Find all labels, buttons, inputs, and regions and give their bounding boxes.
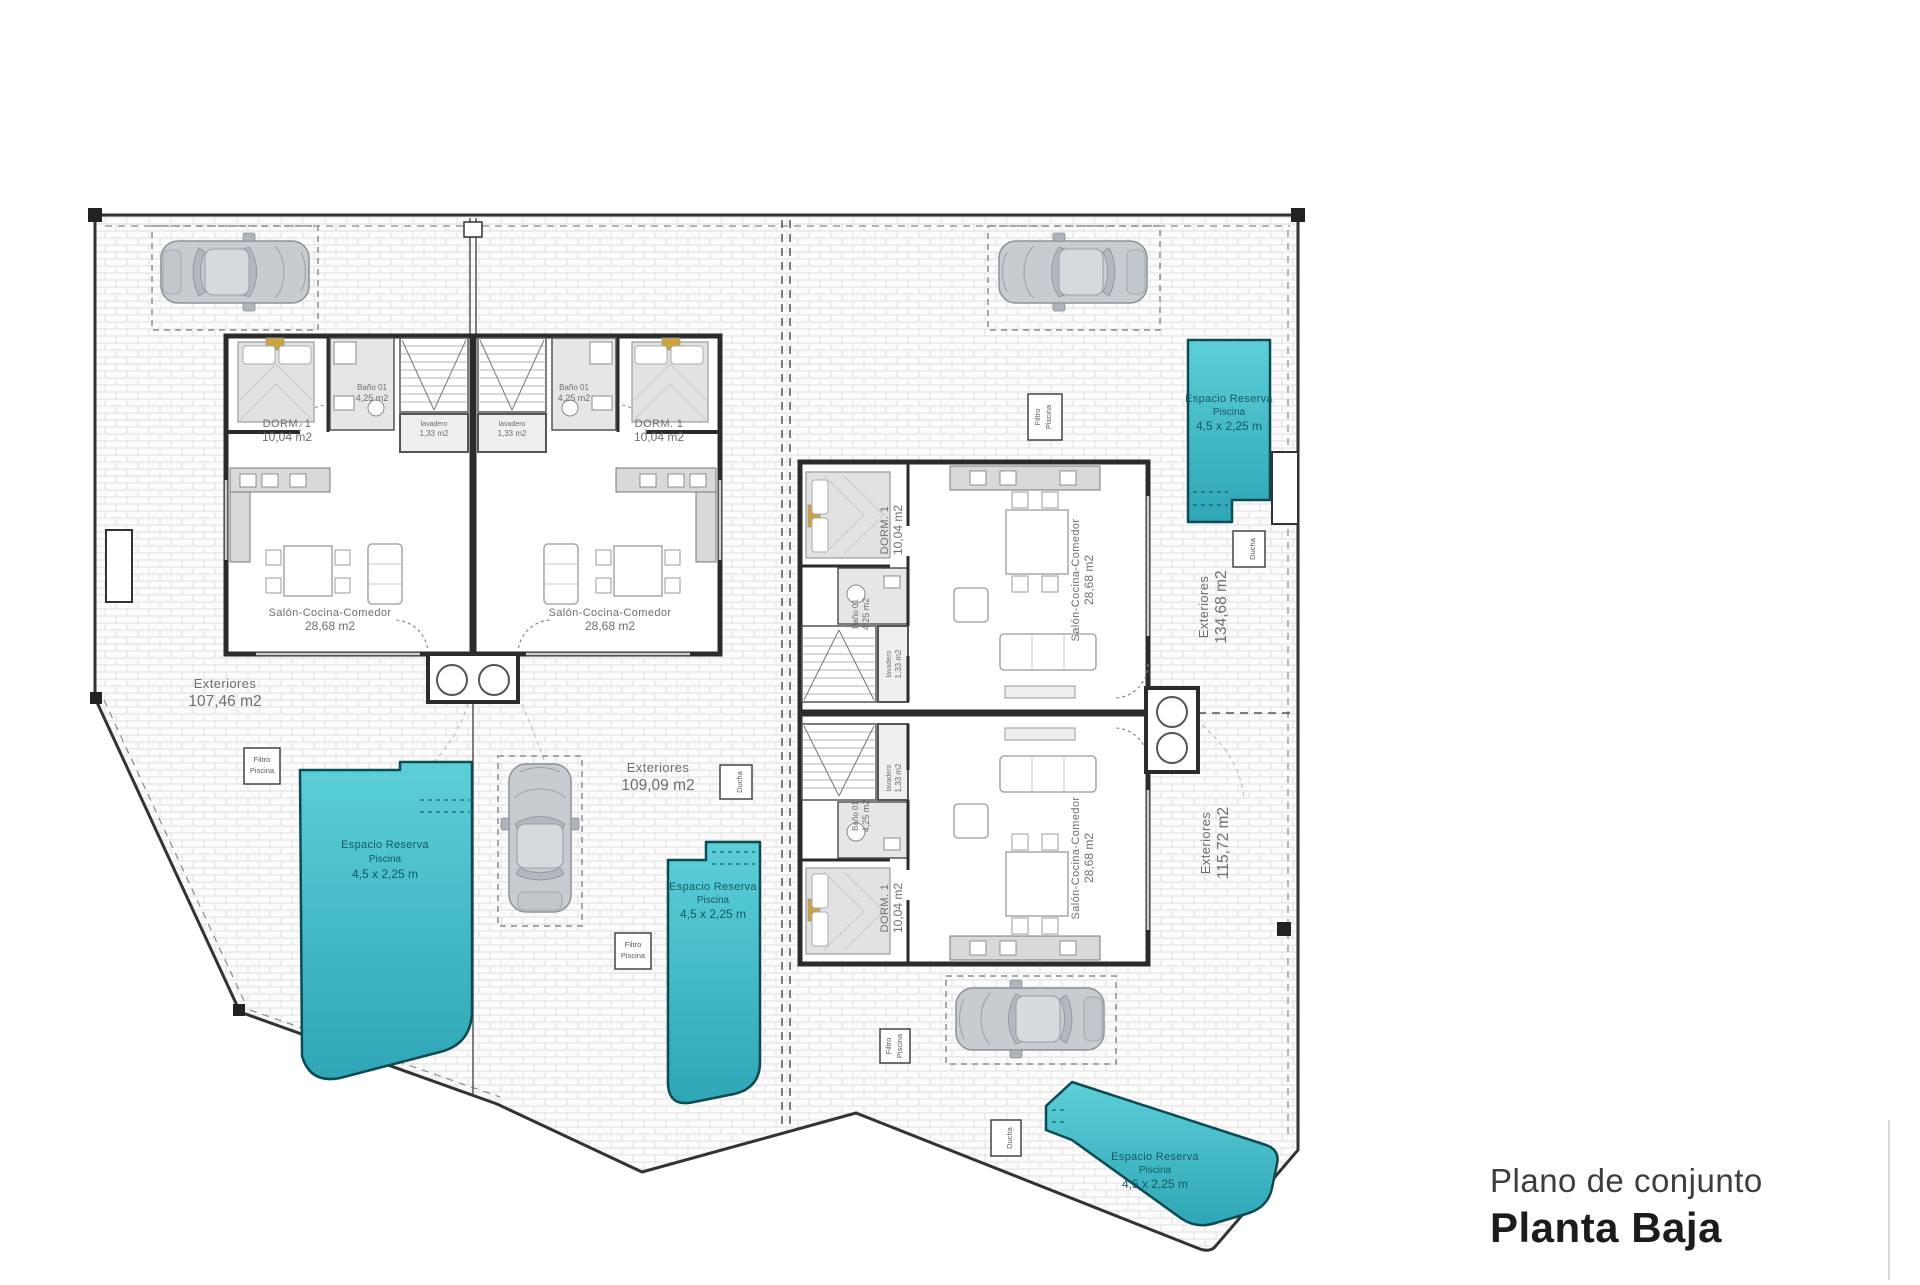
exterior-area: 134,68 m2 <box>1213 570 1230 643</box>
pool-size: 4,5 x 2,25 m <box>680 907 746 921</box>
pool-label: Piscina <box>369 854 402 865</box>
filtro-label: Piscina <box>621 951 646 960</box>
ducha-label: Ducha <box>1248 537 1257 560</box>
filtro-label: Filtro <box>884 1038 893 1055</box>
pool-left <box>300 762 472 1079</box>
pool-label: Espacio Reserva <box>669 881 757 893</box>
boundary-post <box>1291 208 1305 222</box>
room-label: lavadero <box>886 650 893 677</box>
exterior-label: Exteriores <box>1198 812 1213 875</box>
filtro-label: Piscina <box>250 766 275 775</box>
room-area: 4,25 m2 <box>861 800 871 833</box>
filtro-label: Piscina <box>1044 404 1053 429</box>
room-area: 10,04 m2 <box>891 505 905 555</box>
porch-planter <box>437 665 467 695</box>
pool-label: Piscina <box>1213 407 1246 418</box>
room-area: 10,04 m2 <box>634 430 684 444</box>
porch-planter <box>479 665 509 695</box>
exterior-area: 115,72 m2 <box>1215 807 1232 879</box>
room-label: Baño 01 <box>851 801 860 831</box>
car-icon <box>956 980 1104 1058</box>
room-label: lavadero <box>886 764 893 791</box>
porch-planter <box>1157 697 1187 727</box>
right-building <box>800 462 1198 964</box>
room-area: 28,68 m2 <box>1082 555 1096 605</box>
room-label: DORM. 1 <box>879 884 891 933</box>
plan-subtitle: Plano de conjunto <box>1490 1162 1763 1199</box>
car-icon <box>161 233 309 311</box>
room-area: 1,33 m2 <box>894 763 903 792</box>
left-building <box>226 336 720 702</box>
room-area: 4,25 m2 <box>558 393 591 403</box>
room-label: DORM. 1 <box>635 418 684 430</box>
room-label: Salón-Cocina-Comedor <box>549 607 672 619</box>
exterior-area: 107,46 m2 <box>188 693 261 710</box>
exterior-label: Exteriores <box>1196 576 1211 639</box>
pool-label: Piscina <box>697 895 730 906</box>
room-label: Salón-Cocina-Comedor <box>1070 797 1082 920</box>
boundary-post <box>88 208 102 222</box>
room-label: lavadero <box>421 421 448 428</box>
boundary-post <box>90 692 102 704</box>
pool-size: 4,5 x 2,25 m <box>1122 1177 1188 1191</box>
room-area: 28,68 m2 <box>1082 833 1096 883</box>
room-area: 1,33 m2 <box>420 429 449 438</box>
title-block: Plano de conjunto Planta Baja <box>1490 1162 1763 1251</box>
room-label: Salón-Cocina-Comedor <box>269 607 392 619</box>
room-area: 4,25 m2 <box>356 393 389 403</box>
pool-label: Espacio Reserva <box>341 839 429 851</box>
room-label: Baño 01 <box>559 383 589 392</box>
room-label: Baño 01 <box>357 383 387 392</box>
room-area: 28,68 m2 <box>305 619 355 633</box>
room-area: 28,68 m2 <box>585 619 635 633</box>
car-icon <box>999 233 1147 311</box>
room-label: Salón-Cocina-Comedor <box>1070 519 1082 642</box>
room-area: 10,04 m2 <box>262 430 312 444</box>
room-area: 1,33 m2 <box>498 429 527 438</box>
room-area: 1,33 m2 <box>894 649 903 678</box>
ducha-label: Ducha <box>735 770 744 793</box>
room-label: Baño 01 <box>851 599 860 629</box>
room-area: 4,25 m2 <box>861 598 871 631</box>
filtro-label: Filtro <box>1033 409 1042 426</box>
boundary-post <box>233 1004 245 1016</box>
filtro-label: Filtro <box>625 940 642 949</box>
room-label: DORM. 1 <box>263 418 312 430</box>
filtro-label: Filtro <box>254 755 271 764</box>
pool-label: Piscina <box>1139 1165 1172 1176</box>
room-area: 10,04 m2 <box>891 883 905 933</box>
pool-size: 4,5 x 2,25 m <box>1196 419 1262 433</box>
boundary-pilaster <box>106 530 132 602</box>
room-label: lavadero <box>499 421 526 428</box>
pool-label: Espacio Reserva <box>1185 393 1273 405</box>
room-label: DORM. 1 <box>879 506 891 555</box>
boundary-pilaster <box>1272 452 1298 524</box>
plan-title: Planta Baja <box>1490 1204 1722 1251</box>
exterior-label: Exteriores <box>194 676 257 691</box>
pool-label: Espacio Reserva <box>1111 1151 1199 1163</box>
filtro-label: Piscina <box>895 1033 904 1058</box>
porch-planter <box>1157 733 1187 763</box>
car-icon <box>501 764 579 912</box>
site-plan: Filtro Piscina Filtro Piscina Filtro Pis… <box>0 0 1920 1280</box>
pool-size: 4,5 x 2,25 m <box>352 867 418 881</box>
boundary-post <box>1277 922 1291 936</box>
exterior-label: Exteriores <box>627 760 690 775</box>
exterior-area: 109,09 m2 <box>621 777 694 794</box>
divider-post <box>464 222 482 237</box>
ducha-label: Ducha <box>1005 1126 1014 1149</box>
